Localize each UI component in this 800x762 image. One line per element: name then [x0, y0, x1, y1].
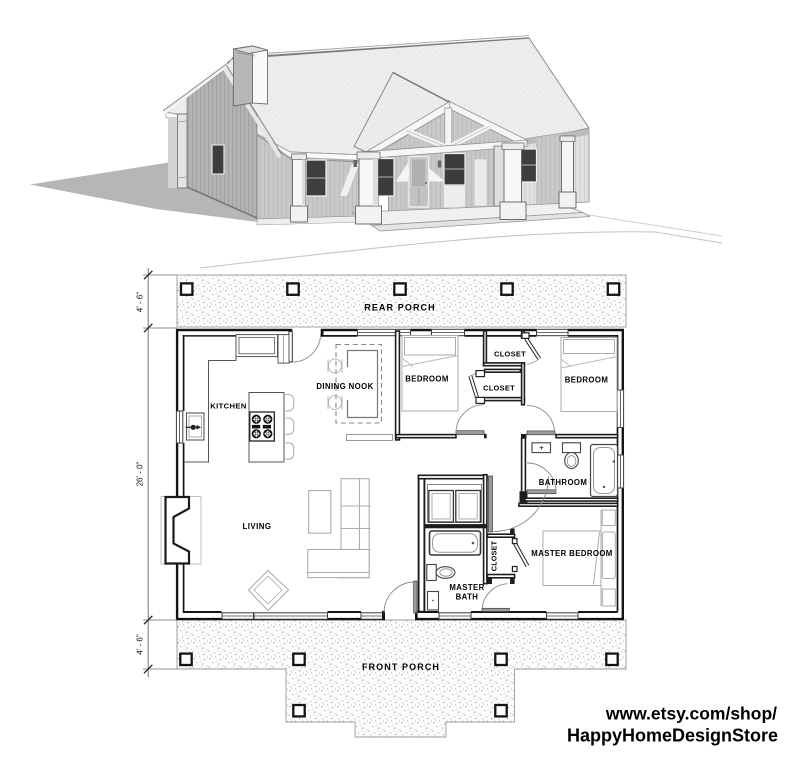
svg-text:CLOSET: CLOSET — [483, 384, 515, 393]
svg-text:BEDROOM: BEDROOM — [405, 375, 449, 384]
svg-text:CLOSET: CLOSET — [494, 350, 526, 359]
svg-text:DINING NOOK: DINING NOOK — [316, 382, 373, 391]
svg-text:CLOSET: CLOSET — [490, 540, 499, 571]
svg-text:LIVING: LIVING — [243, 522, 272, 531]
svg-text:MASTER: MASTER — [449, 583, 484, 592]
svg-text:BATH: BATH — [456, 593, 479, 602]
svg-text:www.etsy.com/shop/: www.etsy.com/shop/ — [605, 704, 777, 724]
svg-text:KITCHEN: KITCHEN — [210, 402, 247, 411]
svg-text:REAR PORCH: REAR PORCH — [364, 303, 436, 313]
svg-text:BEDROOM: BEDROOM — [565, 376, 609, 385]
svg-text:HappyHomeDesignStore: HappyHomeDesignStore — [567, 726, 778, 746]
svg-text:4' - 6": 4' - 6" — [135, 292, 144, 313]
svg-text:MASTER BEDROOM: MASTER BEDROOM — [531, 549, 612, 558]
svg-text:BATHROOM: BATHROOM — [539, 478, 588, 487]
svg-text:FRONT PORCH: FRONT PORCH — [362, 662, 440, 672]
svg-text:26' - 0": 26' - 0" — [135, 461, 144, 486]
svg-text:4' - 6": 4' - 6" — [135, 634, 144, 655]
